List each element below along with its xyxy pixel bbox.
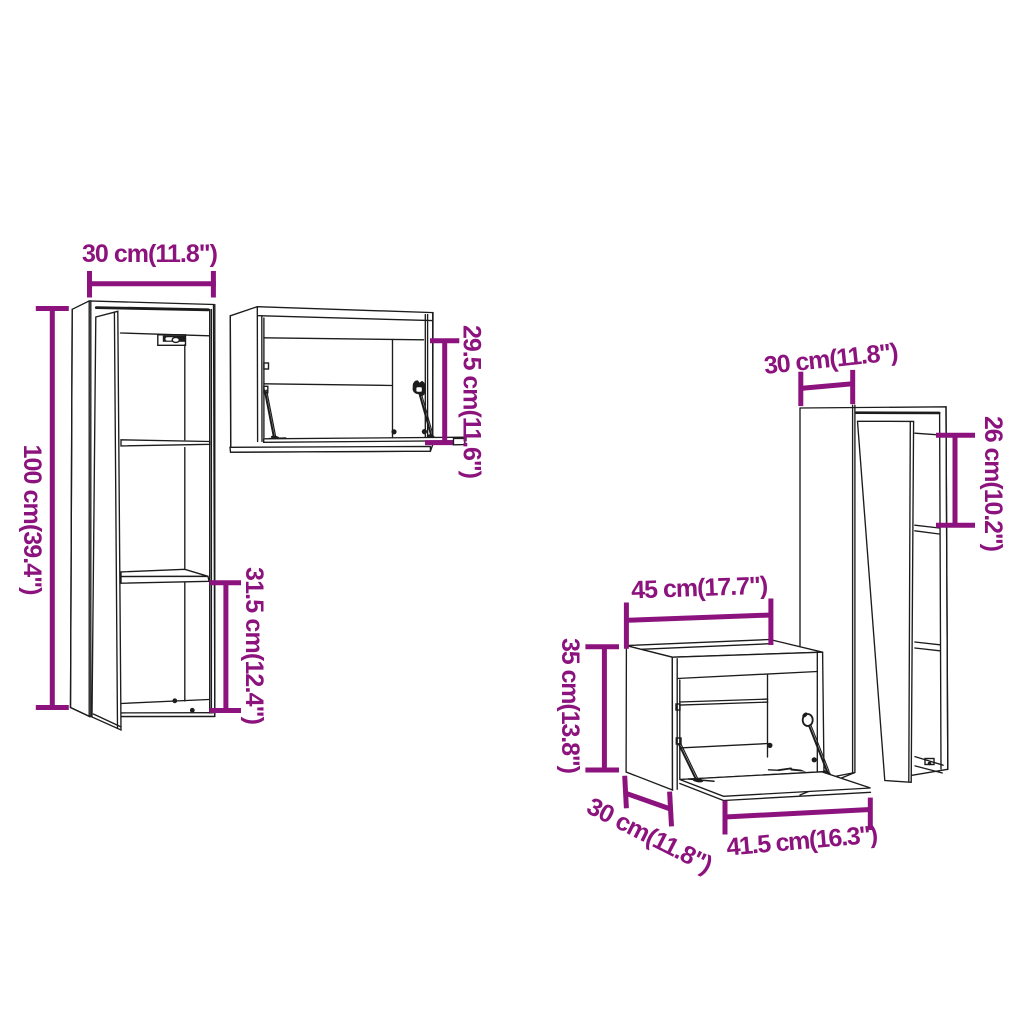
svg-text:29.5 cm(11.6"): 29.5 cm(11.6") [458, 325, 486, 479]
svg-text:26 cm(10.2"): 26 cm(10.2") [979, 416, 1007, 552]
svg-text:30 cm(11.8"): 30 cm(11.8") [82, 240, 218, 268]
svg-text:45 cm(17.7"): 45 cm(17.7") [631, 572, 769, 605]
svg-text:31.5 cm(12.4"): 31.5 cm(12.4") [240, 567, 268, 725]
svg-text:35 cm(13.8"): 35 cm(13.8") [556, 638, 584, 774]
svg-text:100 cm(39.4"): 100 cm(39.4") [18, 445, 46, 596]
